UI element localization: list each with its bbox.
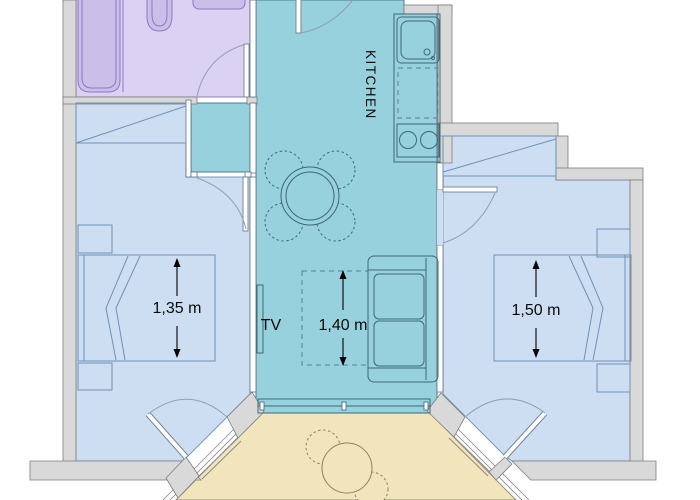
bathroom-sink — [193, 0, 245, 9]
wall-bathroom-right — [250, 0, 256, 97]
left-bed-dimension-label: 1,35 m — [153, 300, 202, 317]
window-tick-mid — [342, 402, 346, 410]
wall-left-bedroom-right — [250, 177, 256, 392]
hall-alcove-floor — [191, 103, 250, 172]
window-tick-left — [260, 402, 264, 410]
bathroom-door-leaf — [244, 44, 249, 97]
wall-right — [630, 180, 643, 463]
bathtub-inner — [82, 0, 116, 88]
wall-alcove-right — [250, 103, 256, 173]
balcony-table — [322, 443, 372, 493]
right-bed-dimension-label: 1,50 m — [512, 302, 561, 319]
dining-table — [281, 167, 339, 225]
wall-left — [63, 0, 76, 463]
wall-bottom-right — [512, 461, 656, 480]
entrance-door-leaf — [296, 0, 301, 33]
right-bedroom-door-leaf — [443, 187, 497, 192]
wall-alcove-left — [186, 100, 191, 177]
wall-alcove-bottom-stub-left — [191, 172, 197, 177]
wall-right-bedroom-top — [438, 123, 558, 136]
living-dimension-label: 1,40 m — [319, 317, 368, 334]
wall-living-right-upper — [437, 163, 443, 190]
tv-label: TV — [261, 317, 282, 334]
right-bedroom-door-opening — [437, 190, 443, 245]
wall-right-top2 — [556, 168, 643, 180]
kitchen-label: KITCHEN — [363, 50, 378, 120]
window-tick-right — [424, 402, 428, 410]
floor-plan: KITCHEN TV 1,40 m — [0, 0, 700, 500]
wall-alcove-bottom-stub-right — [245, 172, 251, 177]
floor-plan-svg: KITCHEN TV 1,40 m — [0, 0, 700, 500]
